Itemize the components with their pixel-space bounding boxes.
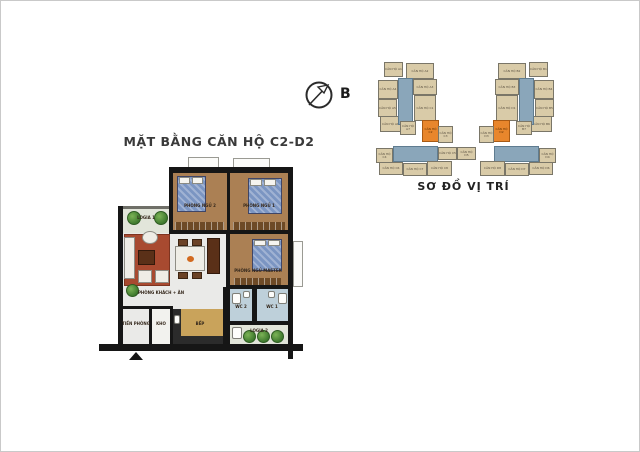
site-unit-label: CĂN HỘ A1 [385, 68, 402, 71]
compass-north-label: B [340, 86, 351, 102]
dining-chair [192, 239, 202, 246]
site-unit-label: CĂN HỘ D2 [494, 128, 509, 134]
room-label-logia1: LOGIA 1 [124, 216, 168, 220]
site-unit: CĂN HỘ B3 [495, 79, 519, 95]
site-unit-label: CĂN HỘ B3 [499, 86, 516, 89]
site-unit-label: CĂN HỘ C6 [383, 167, 400, 170]
site-plan: CĂN HỘ A1CĂN HỘ A2CĂN HỘ A3CĂN HỘ A4CĂN … [376, 56, 556, 178]
dining-chair [178, 272, 188, 279]
pillow [250, 179, 262, 186]
compass: B [304, 78, 356, 112]
site-unit-label: CĂN HỘ A5 [379, 107, 396, 110]
base-wall [99, 344, 303, 351]
ac-ledge [293, 241, 303, 287]
site-unit: CĂN HỘ B2 [498, 63, 526, 79]
site-unit-label: CĂN HỘ D3 [480, 132, 493, 138]
site-unit: CĂN HỘ D7 [505, 163, 529, 176]
armchair [138, 270, 152, 283]
kitchen-sink [174, 315, 180, 324]
site-unit-label: CĂN HỘ B5 [536, 107, 553, 110]
room-label-living: PHÒNG KHÁCH + ĂN [131, 291, 191, 295]
sink [268, 291, 275, 298]
wall [123, 306, 173, 309]
site-unit-label: CĂN HỘ C7 [407, 168, 424, 171]
wall [118, 206, 123, 351]
wardrobe [234, 278, 281, 285]
site-unit: CĂN HỘ D5 [457, 147, 476, 160]
site-unit: CĂN HỘ B4 [534, 80, 554, 99]
site-unit-label: CĂN HỘ A4 [380, 88, 397, 91]
site-unit: CĂN HỘ D4 [539, 148, 556, 163]
floor-lamp [142, 231, 158, 244]
site-unit-label: CĂN HỘ D5 [458, 151, 475, 157]
wall [230, 321, 288, 325]
sofa [124, 237, 135, 279]
table-centerpiece [187, 256, 194, 262]
site-unit-highlighted: CĂN HỘ C2 [422, 120, 439, 142]
page: MẶT BẰNG CĂN HỘ C2-D2 B [0, 0, 640, 452]
site-unit-label: CĂN HỘ C5 [439, 152, 456, 155]
entry-marker [129, 352, 143, 360]
toilet [278, 293, 287, 304]
site-unit-label: CĂN HỘ A7 [401, 125, 415, 131]
site-core [494, 146, 539, 162]
site-unit: CĂN HỘ D3 [479, 126, 494, 143]
site-unit: CĂN HỘ C5 [438, 147, 457, 160]
site-unit: CĂN HỘ C7 [403, 163, 427, 176]
site-core [398, 78, 413, 125]
wall [227, 173, 230, 233]
site-unit-label: CĂN HỘ B4 [536, 88, 553, 91]
site-unit: CĂN HỘ C8 [427, 161, 452, 176]
site-unit: CĂN HỘ B7 [516, 121, 532, 135]
site-core [393, 146, 438, 162]
room-label-wc2: WC 2 [231, 305, 251, 309]
site-unit-label: CĂN HỘ D6 [532, 167, 549, 170]
toilet [232, 293, 241, 304]
dining-chair [178, 239, 188, 246]
site-unit: CĂN HỘ A1 [384, 62, 403, 77]
site-unit-label: CĂN HỘ C4 [377, 153, 392, 159]
site-unit: CĂN HỘ A2 [406, 63, 434, 79]
site-unit-highlighted: CĂN HỘ D2 [493, 120, 510, 142]
wall [288, 167, 293, 359]
site-unit: CĂN HỘ C3 [438, 126, 453, 143]
wall [223, 287, 230, 344]
room-label-kitchen: BẾP [188, 322, 212, 326]
site-unit: CĂN HỘ D1 [496, 95, 518, 121]
storage-floor [152, 309, 170, 344]
site-unit: CĂN HỘ C1 [414, 95, 436, 121]
coffee-table [138, 250, 155, 265]
site-unit-label: CĂN HỘ A6 [382, 123, 399, 126]
wardrobe [233, 222, 285, 230]
wall [252, 289, 257, 321]
wall [149, 309, 152, 344]
wall [230, 285, 288, 289]
room-label-bedroom2: PHÒNG NGỦ 2 [175, 204, 225, 208]
dining-chair [192, 272, 202, 279]
room-label-wc1: WC 1 [259, 305, 285, 309]
site-unit: CĂN HỘ D6 [529, 162, 553, 175]
wall [169, 167, 173, 233]
wall [169, 230, 293, 234]
site-unit: CĂN HỘ B5 [535, 99, 554, 117]
wardrobe [175, 222, 224, 230]
site-unit-label: CĂN HỘ C2 [423, 128, 438, 134]
pillow [192, 177, 203, 184]
site-unit: CĂN HỘ D8 [480, 161, 505, 176]
site-unit-label: CĂN HỘ B1 [530, 68, 547, 71]
cabinet [207, 238, 220, 274]
room-label-hall: TIỀN PHÒNG [121, 322, 151, 326]
room-label-storage: KHO [152, 322, 170, 326]
armchair [155, 270, 169, 283]
site-plan-title: SƠ ĐỒ VỊ TRÍ [396, 180, 531, 193]
logia-railing [123, 206, 169, 209]
site-unit: CĂN HỘ C4 [376, 148, 393, 163]
site-unit: CĂN HỘ A7 [400, 121, 416, 135]
north-arrow-icon [304, 78, 338, 110]
pillow [268, 240, 280, 246]
sink [243, 291, 250, 298]
site-unit-label: CĂN HỘ C1 [417, 107, 434, 110]
wall [226, 234, 230, 290]
site-unit: CĂN HỘ B1 [529, 62, 548, 77]
pillow [254, 240, 266, 246]
site-unit-label: CĂN HỘ B7 [517, 125, 531, 131]
site-unit-label: CĂN HỘ C8 [431, 167, 448, 170]
wall [169, 167, 291, 173]
room-label-logia2: LOGIA 2 [236, 329, 282, 333]
kitchen-counter [181, 336, 223, 344]
site-unit-label: CĂN HỘ B2 [504, 70, 521, 73]
floor-plan-title: MẶT BẰNG CĂN HỘ C2-D2 [109, 134, 329, 149]
site-unit-label: CĂN HỘ C3 [439, 132, 452, 138]
room-label-bedroom1: PHÒNG NGỦ 1 [232, 204, 286, 208]
pillow [264, 179, 276, 186]
room-label-master: PHÒNG NGỦ MASTER [232, 269, 284, 273]
site-unit: CĂN HỘ B6 [531, 116, 552, 132]
site-unit-label: CĂN HỘ D8 [484, 167, 501, 170]
site-unit-label: CĂN HỘ B6 [533, 123, 550, 126]
site-core [519, 78, 534, 125]
pillow [179, 177, 190, 184]
site-unit-label: CĂN HỘ A3 [417, 86, 434, 89]
site-unit: CĂN HỘ C6 [379, 162, 403, 175]
site-unit: CĂN HỘ A5 [378, 99, 397, 117]
floor-plan: LOGIA 1 PHÒNG NGỦ 2 PHÒNG NGỦ 1 PHÒNG NG… [96, 154, 328, 366]
site-unit-label: CĂN HỘ A2 [412, 70, 429, 73]
site-unit-label: CĂN HỘ D4 [540, 153, 555, 159]
site-unit-label: CĂN HỘ D7 [508, 168, 525, 171]
site-unit-label: CĂN HỘ D1 [498, 107, 515, 110]
site-unit: CĂN HỘ A4 [378, 80, 398, 99]
site-unit: CĂN HỘ A3 [413, 79, 437, 95]
wall [170, 309, 173, 344]
